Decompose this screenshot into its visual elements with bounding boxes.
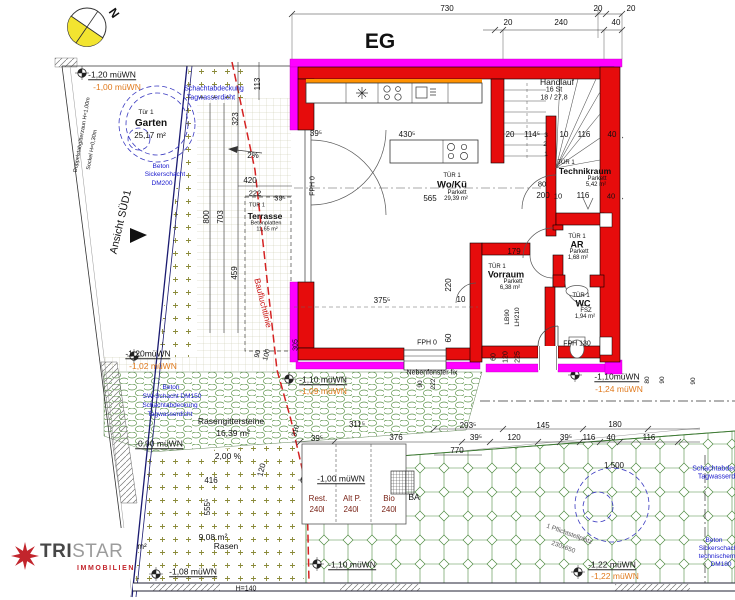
area-rasengitter-name: Rasengittersteine	[198, 417, 264, 426]
right-wall-niche-2	[600, 337, 612, 355]
bin-rest-name: Rest.	[309, 495, 328, 503]
dim-39-entry: 39⁵	[310, 130, 322, 138]
dim-39-row-c: 39⁵	[560, 434, 572, 442]
sw-schacht-3: Schachtabdeckung	[142, 403, 197, 410]
bin-bio-name: Bio	[383, 495, 395, 503]
dim-20-top-a: 20	[594, 5, 603, 13]
label-h140: H=140	[236, 586, 257, 593]
dim-20-top-c: 20	[504, 19, 513, 27]
dim-203: 203⁵	[460, 422, 477, 430]
area-garten-name: Garten	[135, 119, 167, 129]
bin-rest-vol: 240l	[309, 506, 324, 514]
bottom-wall-hatch-2	[340, 584, 420, 591]
ba-hatch-square	[391, 471, 414, 494]
level-bottom-main: -1,10 müWN	[328, 560, 376, 570]
level-garten-alt: -1,00 müWN	[93, 83, 141, 92]
right-wall-niche-1	[600, 213, 612, 227]
bin-altp-vol: 240l	[343, 506, 358, 514]
dim-10-wk: 10	[457, 296, 466, 304]
sicker-tl-3: DM200	[152, 181, 173, 188]
bin-altp-name: Alt P.	[343, 495, 361, 503]
dim-90-right-b: 90	[691, 377, 698, 384]
interior-finish-strip	[306, 79, 482, 83]
dim-565: 565	[423, 195, 436, 203]
level-terr-alt: -1,09 müWN	[299, 387, 347, 396]
stair-ratio: 18 / 27,8	[540, 95, 567, 102]
label-ba: BA	[408, 493, 419, 502]
dim-60-wk: 60	[445, 334, 453, 343]
stair-step-3: 3	[544, 133, 548, 140]
label-nebenfenster: Nebenfenster fix	[407, 370, 458, 377]
dim-459: 459	[231, 266, 239, 279]
level-bins-main: -1,00 müWN	[317, 474, 365, 484]
bottom-wall-hatch-3	[615, 584, 690, 591]
dim-60-entry: 60	[491, 353, 498, 361]
label-lb90: LB90	[505, 309, 512, 324]
dim-376: 376	[389, 434, 402, 442]
label-fph130: FPH 130	[563, 341, 591, 348]
dim-80-right: 80	[645, 376, 652, 383]
dim-200-tech: 200	[536, 192, 549, 200]
dim-90-right-a: 90	[660, 376, 667, 383]
dim-20-top-b: 20	[627, 5, 636, 13]
room-woku-area: 29,39 m²	[444, 196, 468, 202]
dim-116-row-a: 116	[583, 434, 596, 442]
compass-icon	[67, 8, 106, 47]
level-br-main: -1,22 müWN	[588, 560, 636, 570]
sicker-br-1: Beton	[706, 538, 723, 545]
area-rasengitter-size: 16,39 m²	[216, 429, 250, 438]
kitchen-counter	[306, 83, 482, 103]
dim-311: 311⁵	[349, 421, 365, 429]
dim-40-stair: 40	[608, 131, 617, 139]
dim-800: 800	[203, 210, 211, 223]
room-technik-area: 5,42 m²	[586, 182, 606, 188]
bottom-wall-hatch-1	[150, 584, 220, 591]
view-direction-triangle	[130, 228, 147, 243]
south-window	[404, 350, 446, 370]
building-interior	[292, 59, 622, 363]
dim-222-window: 222	[431, 379, 438, 390]
logo-backdrop	[0, 528, 130, 600]
level-right-alt: -1,24 müWN	[595, 385, 643, 394]
dim-114: 114⁵	[524, 131, 540, 139]
dim-430: 430⁵	[399, 131, 416, 139]
logo-star-icon	[11, 542, 39, 570]
room-ar-area: 1,68 m²	[568, 255, 588, 261]
sicker-br-4: DM180	[711, 562, 732, 569]
sw-schacht-1: Beton	[163, 385, 180, 392]
tristar-logo: TRISTAR	[40, 541, 123, 563]
dim-180: 180	[608, 421, 621, 429]
stair-handlauf: Handlauf	[540, 78, 574, 87]
dim-120-entry: 120	[503, 351, 510, 363]
sicker-br-2: Sickerschacht	[699, 546, 735, 553]
dim-703: 703	[217, 210, 225, 223]
dim-39-row-b: 39⁵	[470, 434, 482, 442]
dim-39-row-a: 39⁵	[311, 435, 323, 443]
dim-116-stair: 116	[578, 131, 591, 139]
room-woku-name: Wo/Kü	[437, 180, 467, 190]
bin-bio-vol: 240l	[381, 506, 396, 514]
dim-225-entry: 225	[515, 351, 522, 363]
dim-80-tech: 80	[538, 180, 546, 188]
dim-20-stair: 20	[506, 131, 515, 139]
label-fph0-a: FPH 0	[417, 340, 437, 347]
kitchen-island	[390, 140, 478, 163]
area-terrasse-size: 11,65 m²	[256, 227, 277, 233]
dim-420: 420	[243, 177, 256, 185]
level-mid-main: -1,20müWN	[125, 349, 170, 359]
dim-179: 179	[507, 248, 520, 256]
sw-schacht-2: SW-Schacht DM150	[143, 394, 202, 401]
schacht-br-2: Tagwasserdicht	[698, 474, 735, 481]
schacht-br-1: Schachtabdeckung	[692, 466, 735, 473]
dim-90-window: 90	[418, 380, 425, 387]
dim-770: 770	[450, 447, 463, 455]
dim-116-tech: 116	[577, 192, 590, 200]
dim-39-terr: 39⁵	[274, 194, 285, 202]
stair-step-2: 2	[543, 142, 547, 149]
dim-40-row: 40	[607, 434, 616, 442]
stray-m2: m²	[137, 543, 146, 551]
dim-40-top: 40	[612, 19, 621, 27]
sw-schacht-4: Tagwasserdicht	[148, 412, 193, 419]
lawn-pattern-area	[135, 442, 304, 585]
page-title: EG	[365, 30, 395, 54]
dim-10-tech: 10	[554, 192, 562, 200]
slope-200pct: 2,00 %	[215, 452, 241, 461]
level-br-alt: -1,22 müWN	[591, 572, 639, 581]
dim-323: 323	[232, 112, 240, 125]
area-garten-size: 25,17 m²	[134, 132, 166, 140]
dim-222-terr: 222	[249, 189, 262, 197]
stair-step-1: 1	[544, 152, 548, 159]
area-rasen-name: Rasen	[214, 542, 239, 551]
dim-220: 220	[445, 278, 453, 291]
level-right-main: -1,10müWN	[594, 372, 639, 382]
level-mid-alt: -1,02 müWN	[129, 362, 177, 371]
room-woku-tuer: TÜR 1	[443, 173, 460, 179]
sicker-tl-1: Beton	[153, 164, 170, 171]
room-wc-area: 1,94 m²	[575, 314, 595, 320]
dim-240: 240	[554, 19, 567, 27]
level-low-main: -0,90 müWN	[135, 439, 183, 449]
floor-plan-page: EG N TRISTAR IMMOBILIEN 7302020202404039…	[0, 0, 735, 600]
label-lh210: LH210	[515, 307, 522, 326]
dim-1500: 1 500	[604, 462, 624, 470]
stair-count: 16 St	[546, 87, 562, 94]
dim-10-stair: 10	[560, 131, 569, 139]
logo-text-star: STAR	[72, 541, 123, 562]
label-fph0-b: FPH 0	[310, 176, 317, 196]
dim-120-row: 120	[507, 434, 520, 442]
sicker-tl-2: Sickerschacht	[145, 172, 185, 179]
dim-116-row-b: 116	[643, 434, 656, 442]
level-rasen-main: -1,08 müWN	[169, 567, 217, 577]
slope-2pct: 2%	[247, 152, 259, 160]
area-terrasse-tuer: TÜR 1	[249, 203, 265, 209]
dim-416: 416	[204, 477, 217, 485]
area-terrasse-name: Terrasse	[248, 212, 283, 221]
dim-375: 375⁵	[374, 297, 391, 305]
level-garten-main: -1,20 müWN	[88, 70, 136, 80]
dim-730: 730	[440, 5, 453, 13]
dim-555: 555⁵	[204, 499, 212, 516]
dim-305: 305	[293, 339, 300, 351]
dim-40-tech: 40	[607, 192, 615, 200]
logo-text-tri: TRI	[40, 541, 72, 562]
sicker-br-3: technischem	[699, 554, 735, 561]
room-technik-name: Technikraum	[559, 167, 611, 176]
room-vorraum-area: 6,38 m²	[500, 285, 520, 291]
schacht-tl-2: Tagwasserdicht	[187, 95, 235, 102]
dim-145: 145	[536, 422, 549, 430]
area-garten-tuer: Tür 1	[138, 110, 153, 117]
logo-subtitle: IMMOBILIEN	[77, 565, 135, 572]
dim-113: 113	[254, 78, 262, 91]
level-terr-main: -1,10 müWN	[299, 375, 347, 385]
schacht-tl-1: Schachtabdeckung	[184, 86, 244, 93]
